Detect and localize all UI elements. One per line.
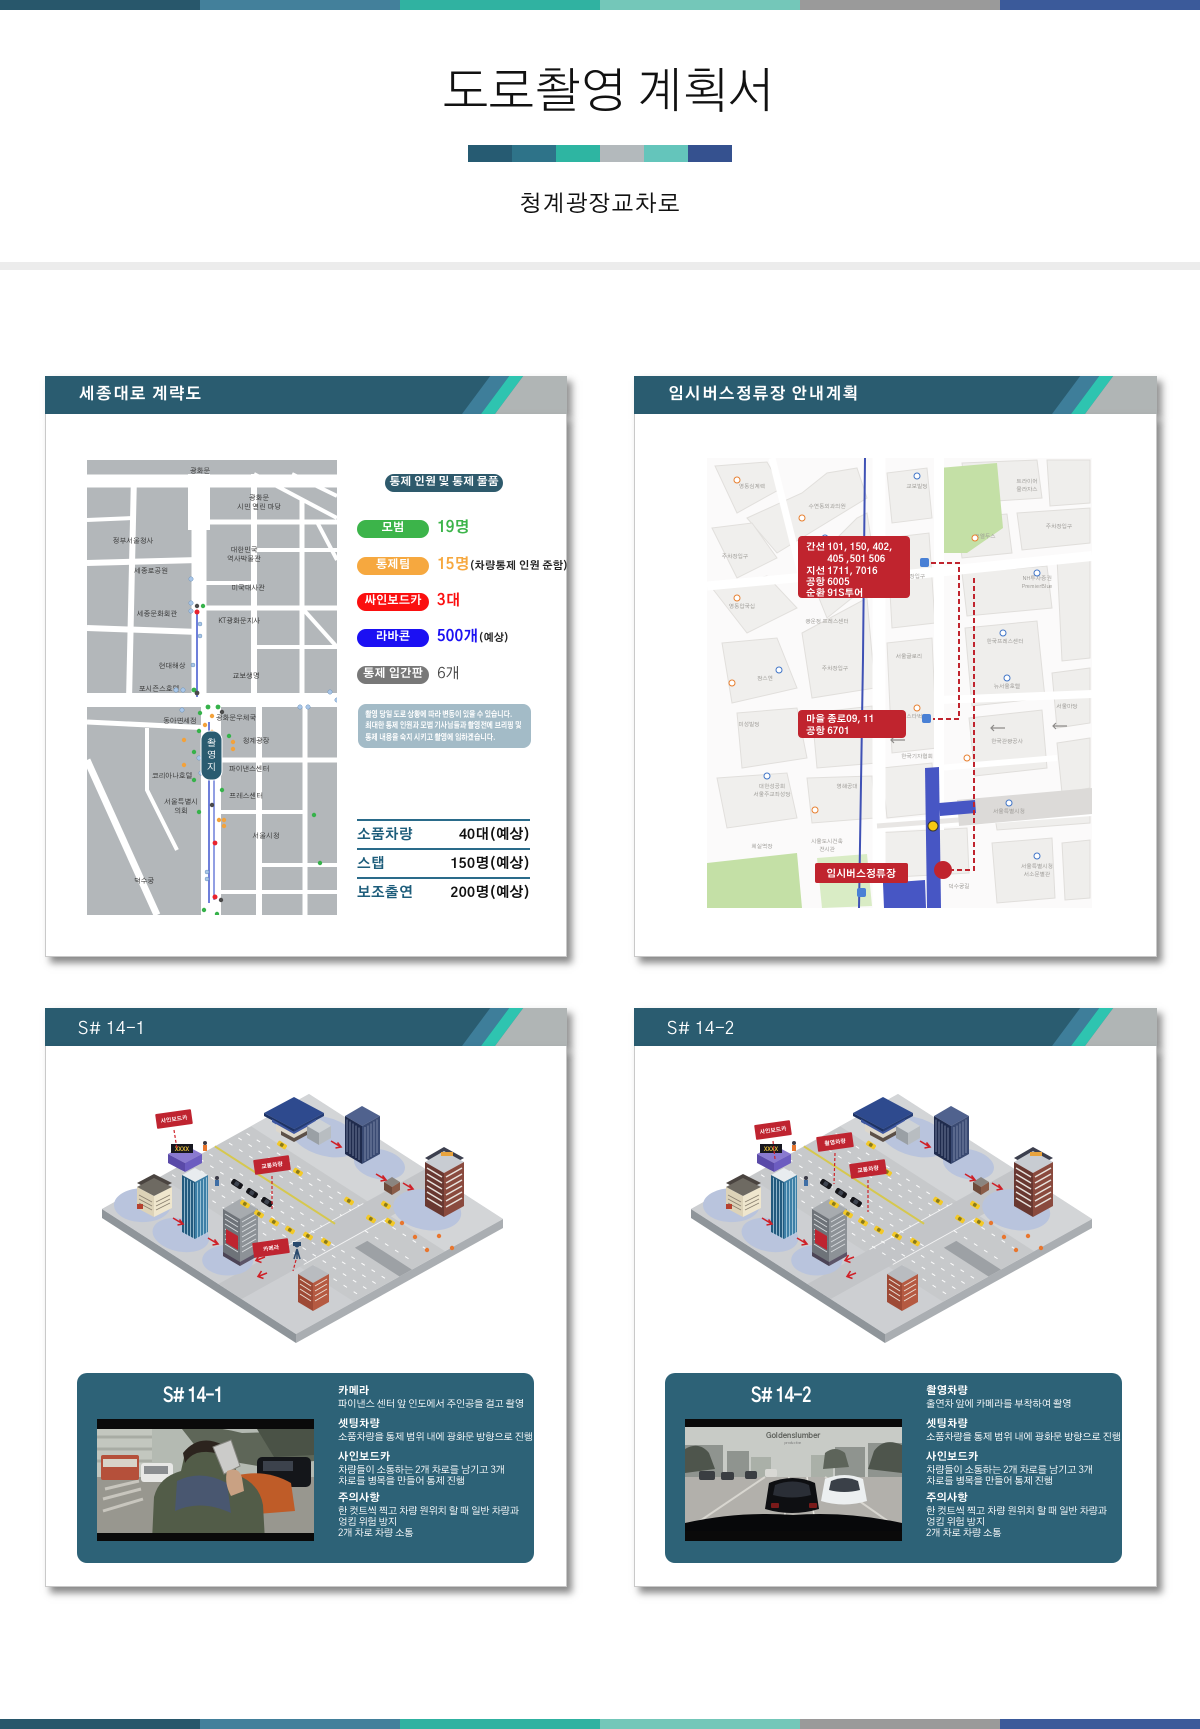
svg-text:공항 6701: 공항 6701 — [806, 725, 850, 736]
svg-text:파이낸스센터: 파이낸스센터 — [229, 765, 269, 773]
svg-text:간선 101, 150, 402,: 간선 101, 150, 402, — [806, 542, 893, 552]
svg-text:서울시청: 서울시청 — [253, 832, 280, 840]
svg-text:주차장입구: 주차장입구 — [722, 553, 748, 560]
svg-text:전시관: 전시관 — [819, 846, 836, 853]
svg-text:세종로공원: 세종로공원 — [133, 567, 168, 575]
svg-text:서울글로리: 서울글로리 — [895, 653, 922, 660]
svg-text:Goldenslumber: Goldenslumber — [766, 1432, 820, 1440]
svg-text:서울특별시: 서울특별시 — [164, 798, 198, 806]
svg-text:시민 열린 마당: 시민 열린 마당 — [237, 502, 281, 511]
svg-text:트라이어: 트라이어 — [1016, 478, 1037, 485]
svg-text:PremierBlue: PremierBlue — [1022, 584, 1054, 590]
svg-text:영동심계렉: 영동심계렉 — [739, 483, 765, 490]
svg-text:프레스센터: 프레스센터 — [229, 792, 263, 800]
svg-text:한국프레스센터: 한국프레스센터 — [987, 638, 1024, 645]
svg-text:포시즌스호텔: 포시즌스호텔 — [139, 684, 180, 693]
svg-text:서울특별시청: 서울특별시청 — [992, 808, 1025, 815]
svg-text:405 ,501 506: 405 ,501 506 — [827, 554, 886, 564]
svg-text:정부서울청사: 정부서울청사 — [113, 537, 154, 545]
svg-text:물라자스: 물라자스 — [1016, 486, 1037, 493]
svg-text:세종문화회관: 세종문화회관 — [136, 609, 178, 618]
svg-text:교보빌딩: 교보빌딩 — [906, 483, 927, 490]
svg-text:한국기자협회: 한국기자협회 — [901, 753, 933, 760]
svg-text:잠스엔: 잠스엔 — [756, 675, 773, 682]
svg-text:코리아나호텔: 코리아나호텔 — [152, 771, 193, 780]
svg-text:광운정 프레스센터: 광운정 프레스센터 — [805, 618, 849, 625]
svg-text:공항 6005: 공항 6005 — [806, 576, 850, 587]
svg-text:촬: 촬 — [207, 738, 216, 748]
svg-text:영: 영 — [207, 750, 216, 760]
svg-text:주차장입구: 주차장입구 — [1046, 523, 1072, 530]
svg-text:서울특별시청: 서울특별시청 — [1020, 863, 1053, 870]
svg-text:덕수궁길: 덕수궁길 — [948, 883, 969, 890]
svg-text:영동압국십: 영동압국십 — [729, 603, 755, 610]
svg-text:지선 1711, 7016: 지선 1711, 7016 — [806, 566, 878, 576]
svg-text:서울주교좌성당: 서울주교좌성당 — [753, 791, 792, 798]
svg-text:현대해상: 현대해상 — [159, 662, 186, 670]
svg-text:대한성공회: 대한성공회 — [759, 783, 785, 790]
svg-text:서울마당: 서울마당 — [1055, 703, 1078, 710]
svg-text:역사박물관: 역사박물관 — [227, 554, 261, 563]
svg-text:한국관광공사: 한국관광공사 — [991, 738, 1023, 745]
svg-text:순환 91S투어: 순환 91S투어 — [806, 588, 863, 598]
svg-text:의회: 의회 — [174, 807, 187, 815]
svg-text:교보생명: 교보생명 — [233, 672, 260, 680]
svg-text:서소문별관: 서소문별관 — [1023, 871, 1051, 878]
svg-text:미성빌딩: 미성빌딩 — [738, 721, 759, 728]
svg-text:광화문우체국: 광화문우체국 — [216, 714, 257, 722]
svg-text:덕수궁: 덕수궁 — [134, 877, 154, 885]
svg-text:미국대사관: 미국대사관 — [231, 583, 265, 592]
svg-text:production: production — [784, 1441, 801, 1445]
svg-text:청계광장: 청계광장 — [243, 737, 270, 745]
svg-text:주차장입구: 주차장입구 — [822, 665, 848, 672]
svg-text:대한민국: 대한민국 — [231, 546, 258, 554]
svg-text:광화문: 광화문 — [249, 494, 269, 502]
svg-text:지: 지 — [207, 762, 216, 772]
svg-text:마을 종로09, 11: 마을 종로09, 11 — [806, 714, 874, 724]
svg-text:뉴서울호텔: 뉴서울호텔 — [994, 683, 1020, 690]
svg-text:시울도시건축: 시울도시건축 — [810, 838, 843, 845]
svg-text:KT광화문지사: KT광화문지사 — [218, 617, 260, 625]
svg-text:수연동외과의원: 수연동외과의원 — [809, 503, 846, 510]
svg-text:체실역장: 체실역장 — [751, 843, 773, 850]
svg-text:광화문: 광화문 — [190, 467, 210, 475]
svg-text:영해공대: 영해공대 — [836, 783, 857, 790]
svg-text:동아면세점: 동아면세점 — [163, 717, 197, 725]
svg-text:임시버스정류장: 임시버스정류장 — [826, 868, 896, 880]
